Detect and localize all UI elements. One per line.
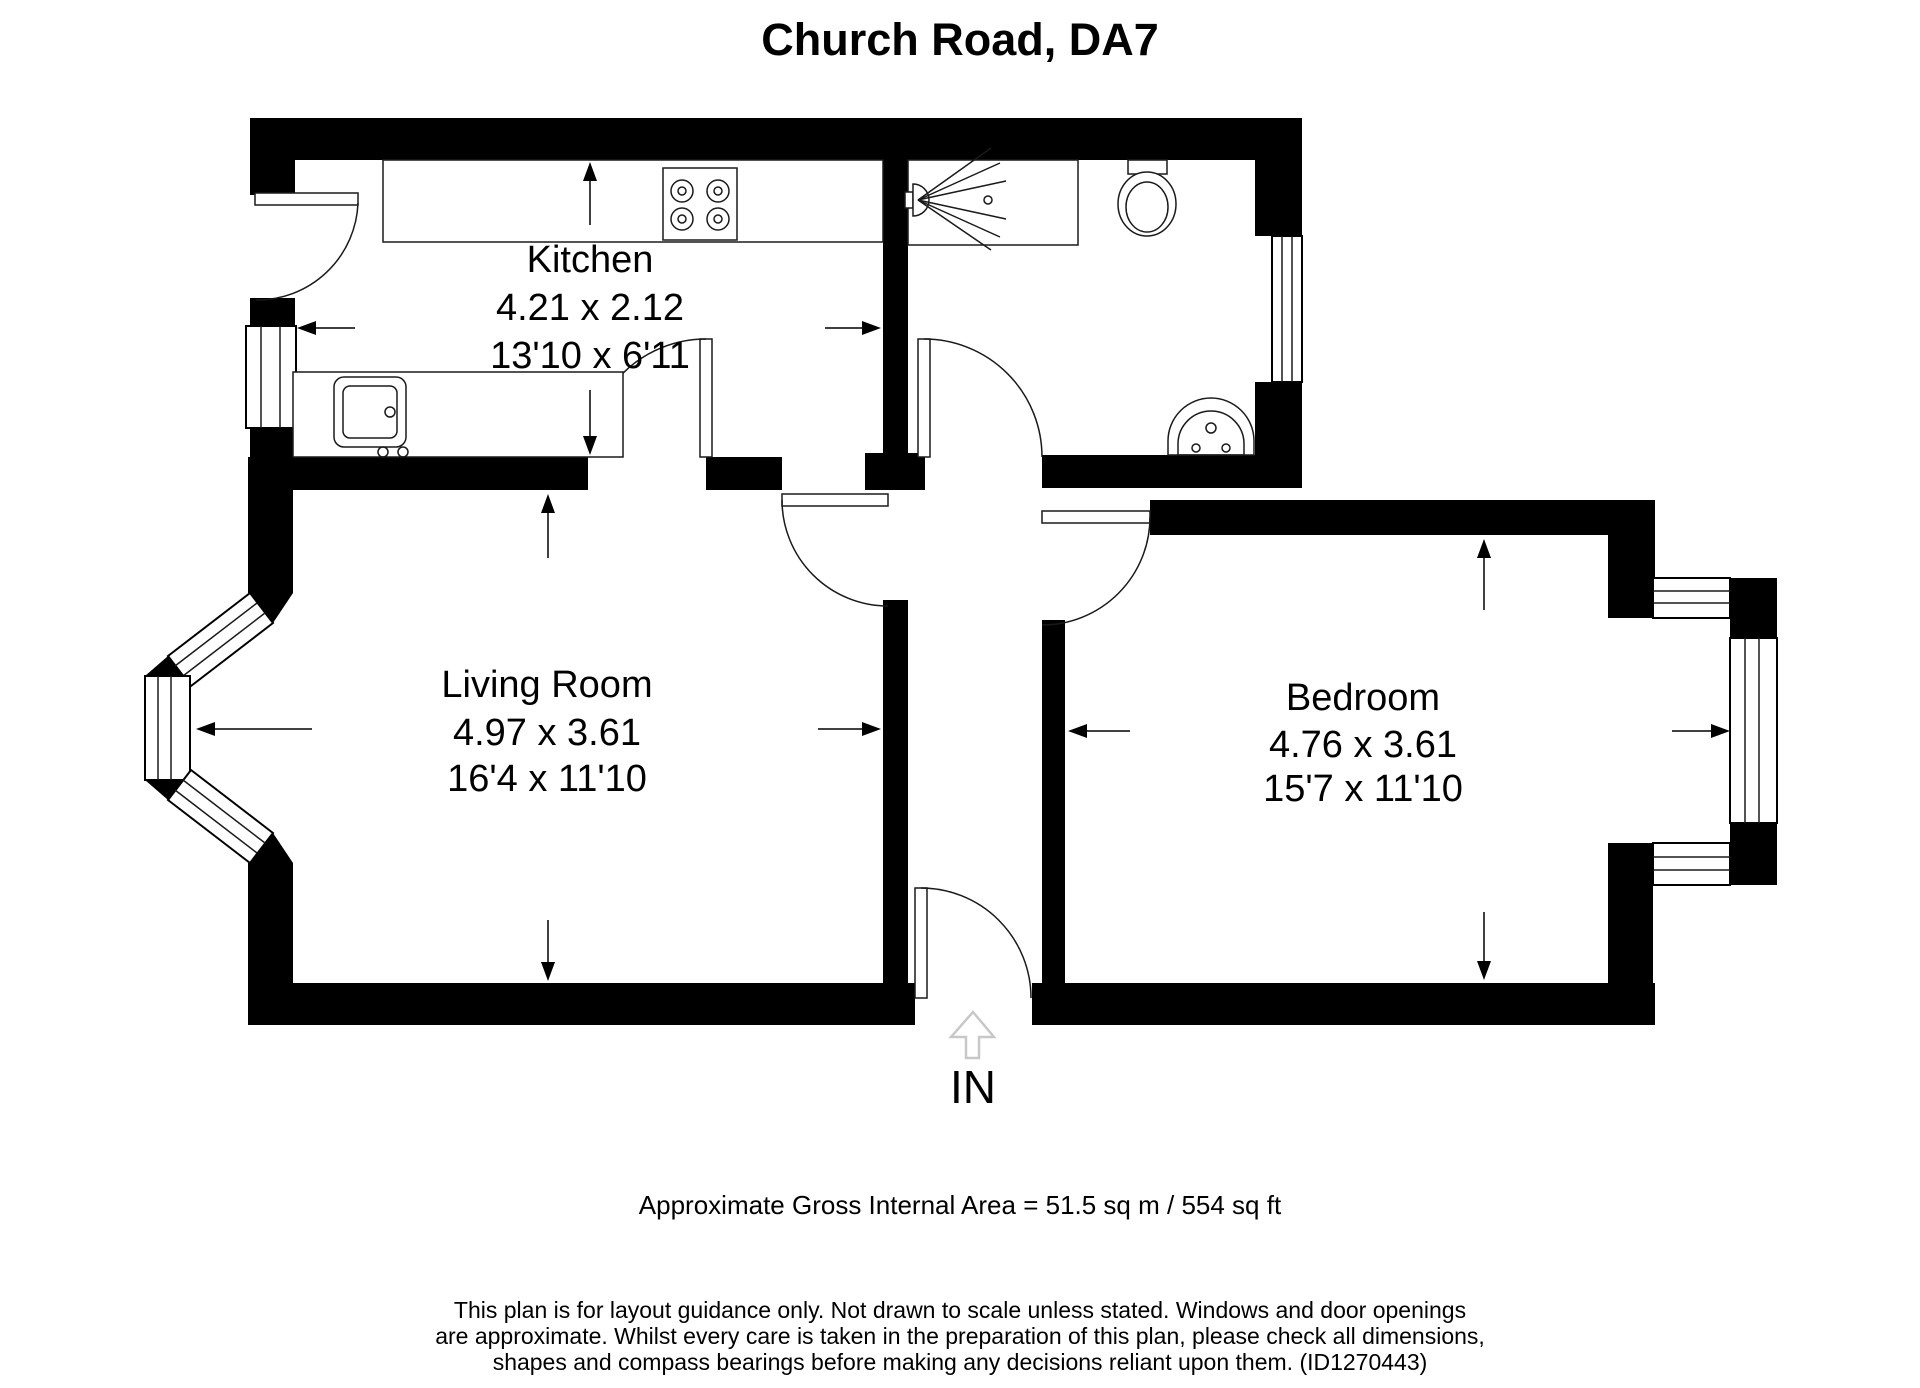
wall-bedroom-right-lower [1608, 843, 1653, 1025]
kitchen-arrow-right [825, 321, 881, 335]
kitchen-arrow-left [297, 321, 355, 335]
page-title: Church Road, DA7 [761, 14, 1159, 65]
bedroom-bay-window-right [1730, 638, 1777, 823]
bedroom-arrow-down [1477, 912, 1491, 980]
entrance-label: IN [950, 1061, 996, 1113]
doors [255, 193, 1150, 998]
toilet [1118, 160, 1176, 236]
bathroom-door [918, 339, 1042, 457]
bedroom-arrow-left [1068, 724, 1130, 738]
kitchen-counter-top [383, 160, 883, 242]
wall-rbay-corner-top [1730, 578, 1777, 638]
wall-kitchen-stub [706, 457, 782, 490]
bedroom-label: Bedroom 4.76 x 3.61 15'7 x 11'10 [1263, 677, 1463, 810]
wall-bedroom-top [1150, 500, 1655, 535]
livingroom-arrow-down [541, 920, 555, 981]
livingroom-dim-metric: 4.97 x 3.61 [453, 712, 641, 754]
wall-bedroom-right-upper [1608, 500, 1655, 618]
kitchen-window [246, 326, 296, 428]
disclaimer-line-1: This plan is for layout guidance only. N… [454, 1297, 1466, 1323]
floorplan-canvas: IN Church Road, DA7 Kitchen 4.21 x 2.12 … [0, 0, 1920, 1388]
windows [145, 236, 1777, 885]
bedroom-arrow-right [1672, 724, 1730, 738]
livingroom-bay-window-top [168, 593, 273, 686]
walls [145, 118, 1777, 1025]
wall-bathroom-right-lower [1255, 382, 1302, 488]
wall-left-mid [250, 298, 295, 326]
shower-tray [908, 160, 1078, 245]
bedroom-door [1042, 511, 1150, 625]
kitchen-external-door [255, 193, 358, 300]
livingroom-dim-imperial: 16'4 x 11'10 [447, 758, 647, 800]
kitchen-name: Kitchen [527, 239, 654, 281]
bathroom-fixtures [905, 148, 1254, 455]
wall-livingroom-left-upper [248, 457, 293, 593]
disclaimer-line-2: are approximate. Whilst every care is ta… [435, 1323, 1485, 1349]
entrance-mark: IN [950, 1012, 996, 1113]
livingroom-bay-window-middle [145, 676, 190, 780]
disclaimer-line-3: shapes and compass bearings before makin… [493, 1349, 1428, 1375]
basin [1168, 398, 1254, 455]
bedroom-name: Bedroom [1286, 677, 1440, 719]
livingroom-bay-window-bottom [168, 770, 273, 863]
wall-bottom-right [1032, 983, 1655, 1025]
wall-rbay-corner-bottom [1730, 823, 1777, 885]
bedroom-dim-imperial: 15'7 x 11'10 [1263, 768, 1463, 810]
kitchen-dim-metric: 4.21 x 2.12 [496, 287, 684, 329]
shower-head [905, 148, 1006, 250]
wall-kitchen-bottom [250, 457, 588, 490]
sink [334, 377, 408, 457]
bedroom-bay-window-bottom [1653, 843, 1730, 885]
area-note: Approximate Gross Internal Area = 51.5 s… [639, 1190, 1282, 1220]
livingroom-name: Living Room [441, 664, 652, 706]
bedroom-arrow-up [1477, 539, 1491, 610]
entry-arrow-icon [951, 1012, 994, 1058]
wall-left-top [250, 118, 295, 195]
bedroom-bay-window-top [1653, 578, 1730, 618]
wall-top [250, 118, 1302, 160]
bedroom-dim-metric: 4.76 x 3.61 [1269, 724, 1457, 766]
wall-corridor-left [883, 600, 908, 983]
livingroom-arrow-left [196, 722, 312, 736]
livingroom-label: Living Room 4.97 x 3.61 16'4 x 11'10 [441, 664, 652, 800]
kitchen-label: Kitchen 4.21 x 2.12 13'10 x 6'11 [490, 239, 690, 377]
floorplan-page: IN Church Road, DA7 Kitchen 4.21 x 2.12 … [0, 0, 1920, 1388]
wall-corridor-right [1042, 620, 1065, 983]
dimension-arrows [196, 162, 1730, 981]
wall-bathroom-right-upper [1255, 160, 1302, 236]
hob [663, 168, 737, 240]
disclaimer: This plan is for layout guidance only. N… [435, 1297, 1485, 1375]
bathroom-window [1272, 236, 1302, 382]
livingroom-door [782, 494, 888, 606]
livingroom-arrow-right [818, 722, 881, 736]
livingroom-arrow-up [541, 494, 555, 558]
wall-bottom-left [250, 983, 915, 1025]
kitchen-dim-imperial: 13'10 x 6'11 [490, 335, 690, 377]
entrance-door [915, 888, 1031, 998]
